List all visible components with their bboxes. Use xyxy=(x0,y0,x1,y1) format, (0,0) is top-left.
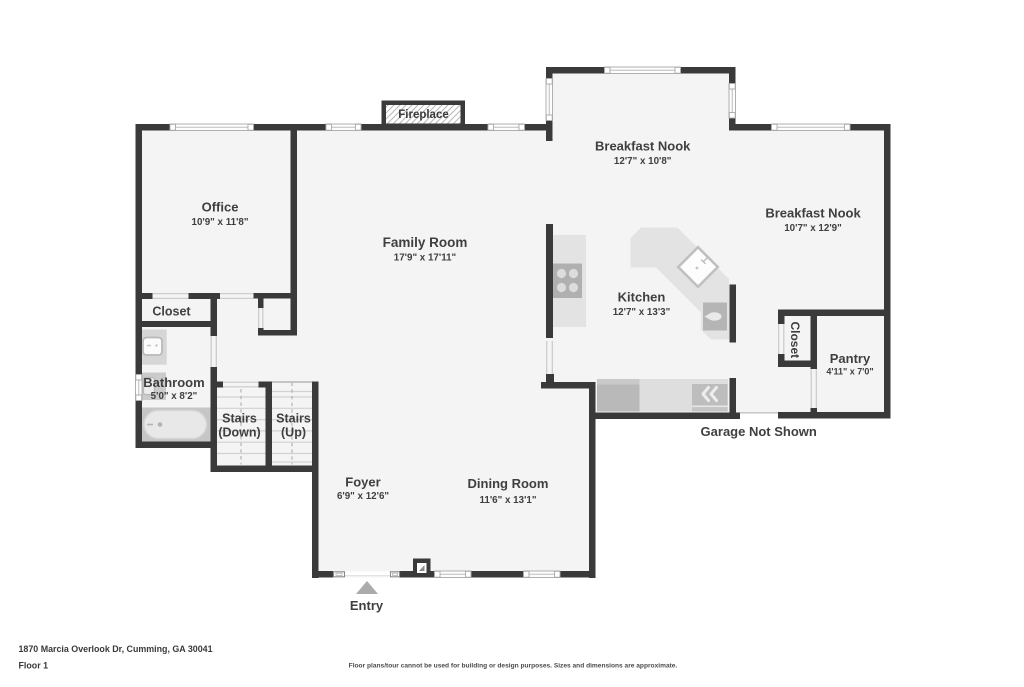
svg-text:Family Room: Family Room xyxy=(383,235,468,250)
svg-text:Foyer: Foyer xyxy=(345,475,380,490)
svg-text:Dining Room: Dining Room xyxy=(468,476,549,491)
svg-text:12'7" x 10'8": 12'7" x 10'8" xyxy=(614,156,672,167)
svg-text:Garage Not Shown: Garage Not Shown xyxy=(701,424,817,439)
svg-text:12'7" x 13'3": 12'7" x 13'3" xyxy=(613,307,671,318)
svg-text:10'9" x 11'8": 10'9" x 11'8" xyxy=(192,217,249,228)
svg-text:Office: Office xyxy=(202,200,239,215)
svg-text:Floor 1: Floor 1 xyxy=(19,661,49,671)
svg-text:11'6" x 13'1": 11'6" x 13'1" xyxy=(480,495,537,506)
svg-text:Breakfast Nook: Breakfast Nook xyxy=(765,206,861,221)
svg-text:Closet: Closet xyxy=(152,304,191,318)
svg-text:4'11" x 7'0": 4'11" x 7'0" xyxy=(826,367,873,377)
svg-text:5'0" x 8'2": 5'0" x 8'2" xyxy=(151,391,198,402)
svg-text:Entry: Entry xyxy=(350,598,384,613)
svg-text:6'9" x 12'6": 6'9" x 12'6" xyxy=(337,491,389,502)
svg-text:Stairs: Stairs xyxy=(222,412,257,426)
svg-text:17'9" x 17'11": 17'9" x 17'11" xyxy=(394,253,456,264)
svg-text:Closet: Closet xyxy=(788,321,802,358)
svg-text:10'7" x 12'9": 10'7" x 12'9" xyxy=(784,223,842,234)
svg-text:Stairs: Stairs xyxy=(276,412,311,426)
svg-text:1870 Marcia Overlook Dr, Cummi: 1870 Marcia Overlook Dr, Cumming, GA 300… xyxy=(19,644,213,654)
svg-text:(Up): (Up) xyxy=(281,426,306,440)
svg-text:Breakfast Nook: Breakfast Nook xyxy=(595,139,691,154)
svg-text:Floor plans/tour cannot be use: Floor plans/tour cannot be used for buil… xyxy=(349,663,678,670)
svg-text:(Down): (Down) xyxy=(218,426,260,440)
svg-text:Fireplace: Fireplace xyxy=(398,109,449,121)
svg-text:Kitchen: Kitchen xyxy=(618,290,666,305)
svg-text:Bathroom: Bathroom xyxy=(143,375,204,390)
svg-text:Pantry: Pantry xyxy=(830,351,871,366)
